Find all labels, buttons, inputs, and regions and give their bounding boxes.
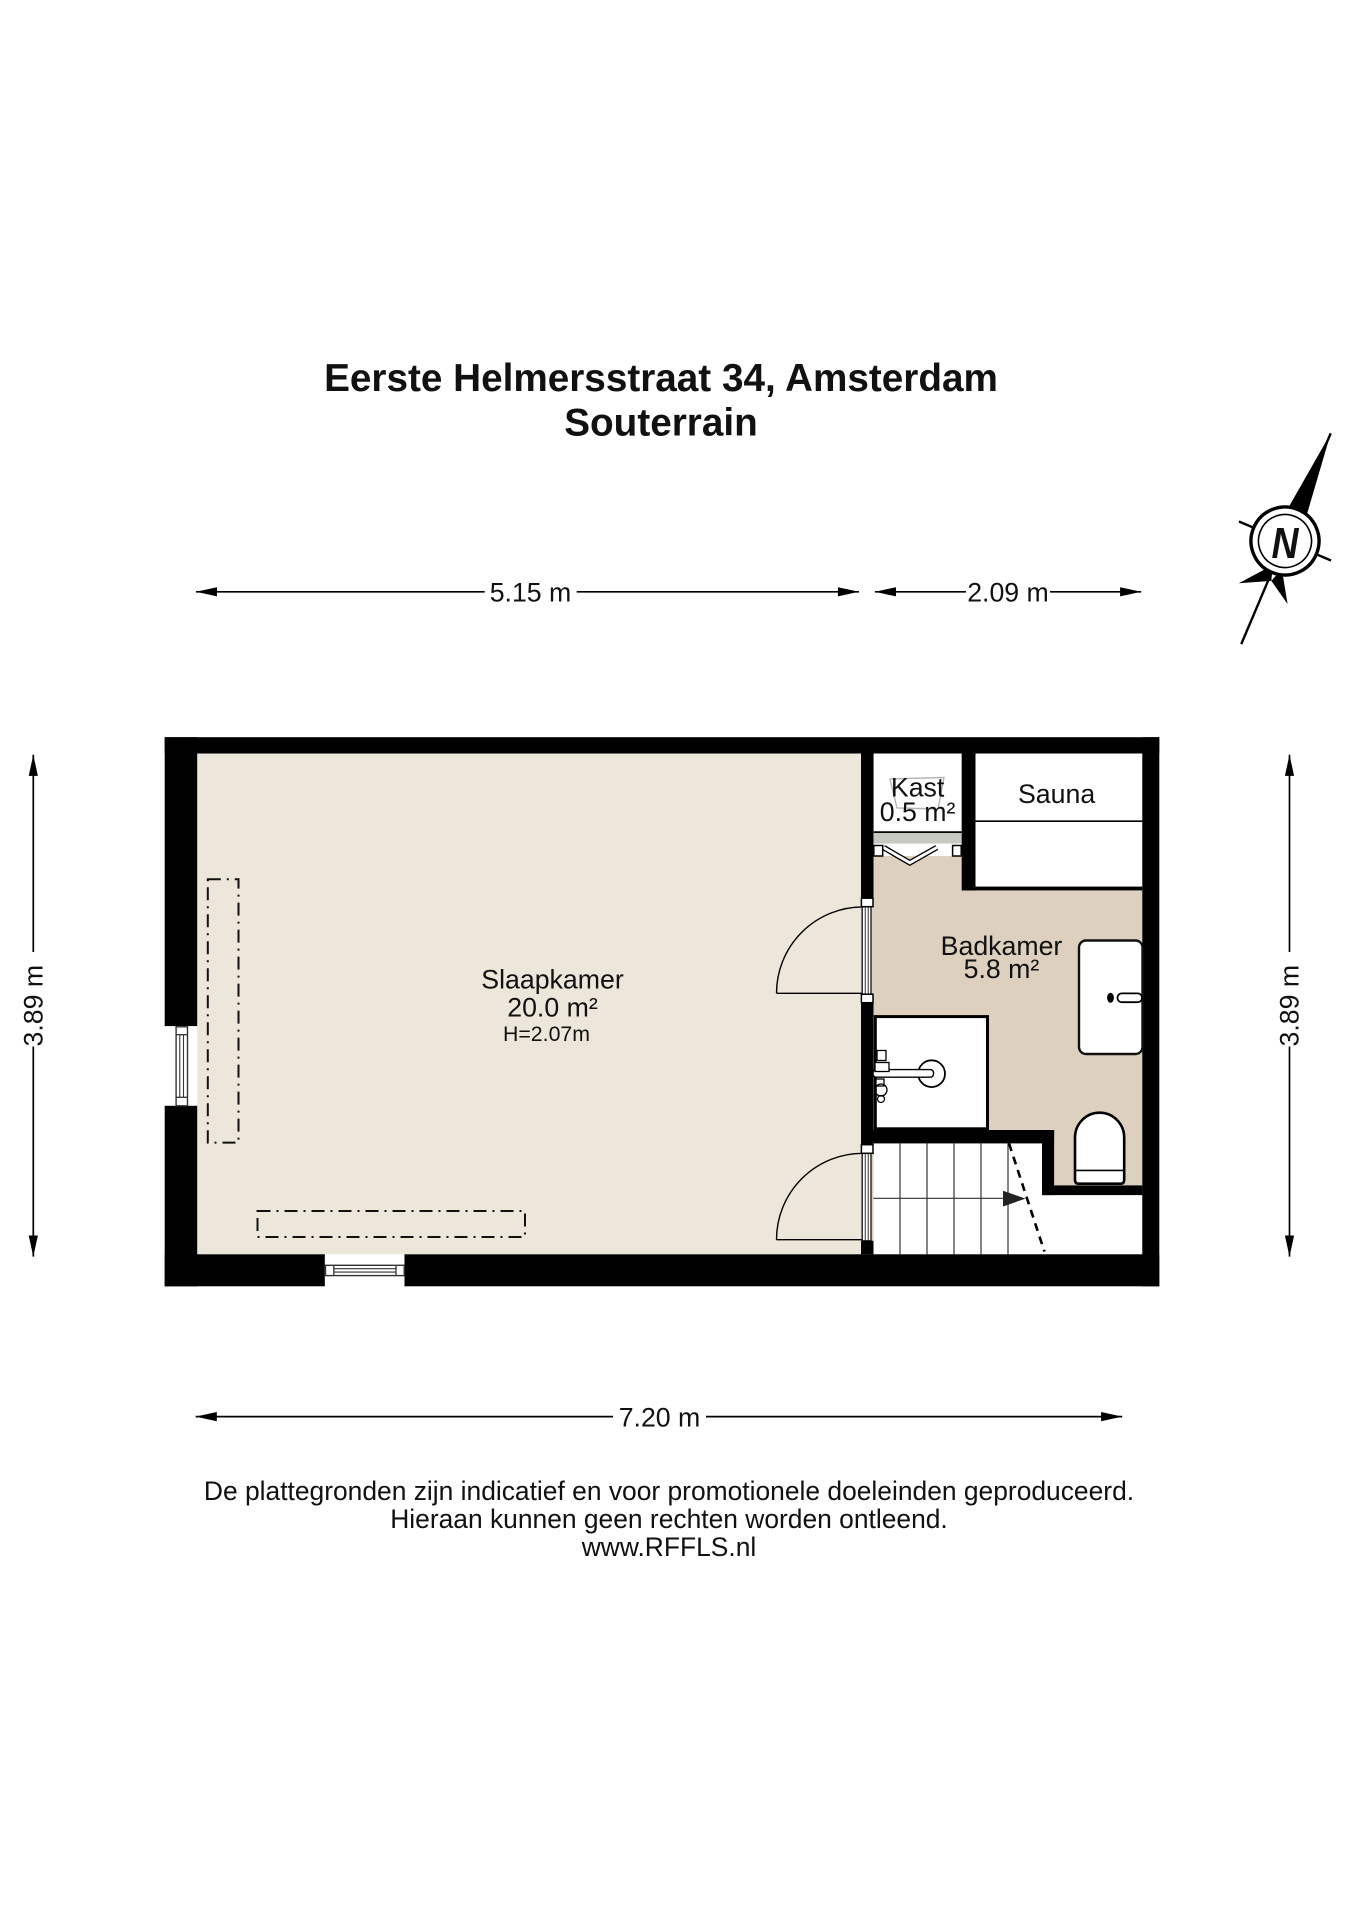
svg-text:Eerste Helmersstraat 34, Amste: Eerste Helmersstraat 34, Amsterdam: [324, 357, 998, 400]
svg-text:Slaapkamer: Slaapkamer: [481, 965, 624, 995]
svg-text:Sauna: Sauna: [1018, 779, 1095, 809]
svg-text:Hieraan kunnen geen rechten wo: Hieraan kunnen geen rechten worden ontle…: [390, 1504, 948, 1534]
svg-text:3.89 m: 3.89 m: [19, 965, 49, 1047]
svg-text:www.RFFLS.nl: www.RFFLS.nl: [581, 1532, 757, 1562]
svg-text:De plattegronden zijn indicati: De plattegronden zijn indicatief en voor…: [204, 1476, 1134, 1506]
svg-text:7.20 m: 7.20 m: [619, 1402, 701, 1432]
svg-text:N: N: [1271, 518, 1299, 568]
svg-text:2.09 m: 2.09 m: [967, 578, 1049, 608]
svg-text:20.0 m²: 20.0 m²: [507, 993, 598, 1023]
svg-text:Souterrain: Souterrain: [564, 402, 757, 445]
svg-text:H=2.07m: H=2.07m: [503, 1022, 590, 1046]
svg-text:5.8 m²: 5.8 m²: [964, 954, 1040, 984]
svg-text:0.5 m²: 0.5 m²: [880, 797, 956, 827]
svg-text:5.15 m: 5.15 m: [490, 578, 572, 608]
svg-text:3.89 m: 3.89 m: [1275, 965, 1305, 1047]
